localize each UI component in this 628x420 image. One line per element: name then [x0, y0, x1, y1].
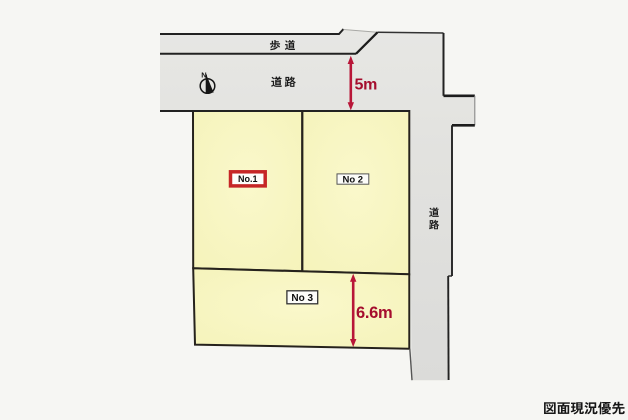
svg-text:No 2: No 2 [343, 174, 364, 185]
svg-text:No.1: No.1 [238, 174, 258, 184]
svg-text:N: N [201, 71, 206, 80]
svg-text:6.6m: 6.6m [356, 304, 392, 322]
svg-text:No 3: No 3 [291, 293, 313, 304]
svg-text:5m: 5m [355, 77, 378, 94]
